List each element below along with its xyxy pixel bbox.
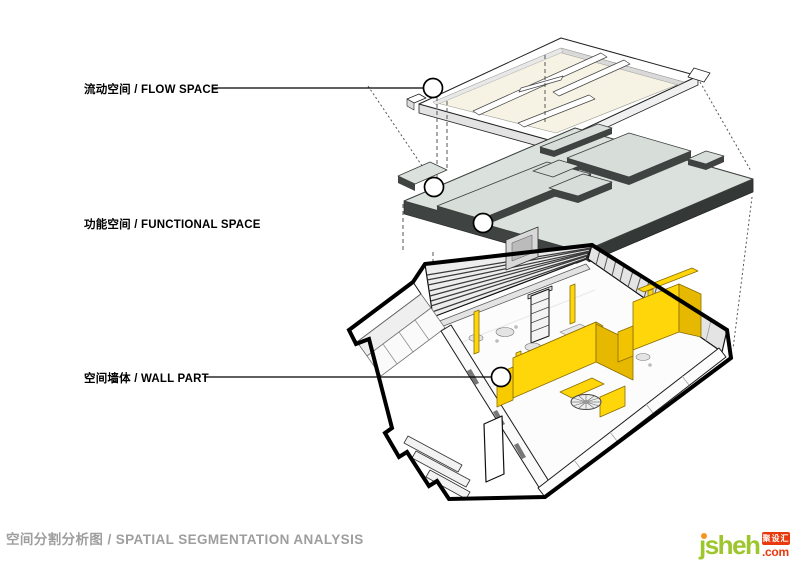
bench-strips [404, 436, 470, 499]
spiral-stair [571, 395, 601, 411]
label-functional-space: 功能空间 / FUNCTIONAL SPACE [84, 216, 261, 232]
logo-wordmark: jsheh [699, 531, 759, 559]
label-flow-space: 流动空间 / FLOW SPACE [84, 81, 219, 97]
marker-circle-functional-2 [474, 214, 493, 233]
marker-circle-functional-1 [425, 178, 444, 197]
logo-badge: 聚设汇 [762, 532, 790, 545]
spatial-segmentation-diagram-page: 流动空间 / FLOW SPACE 功能空间 / FUNCTIONAL SPAC… [0, 0, 800, 567]
logo-tld: .com [762, 545, 789, 559]
functional-space-slab [398, 124, 753, 265]
label-wall-part: 空间墙体 / WALL PART [84, 370, 209, 386]
marker-circle-wall-part [492, 368, 511, 387]
marker-circle-flow-space [424, 79, 443, 98]
flow-space-plate [407, 38, 710, 151]
central-column [528, 286, 552, 343]
wall-part-model [349, 227, 731, 499]
diagram-caption: 空间分割分析图 / SPATIAL SEGMENTATION ANALYSIS [6, 528, 364, 548]
logo-dot-icon [701, 533, 707, 539]
jsheh-logo: jsheh 聚设汇 .com [699, 531, 795, 565]
